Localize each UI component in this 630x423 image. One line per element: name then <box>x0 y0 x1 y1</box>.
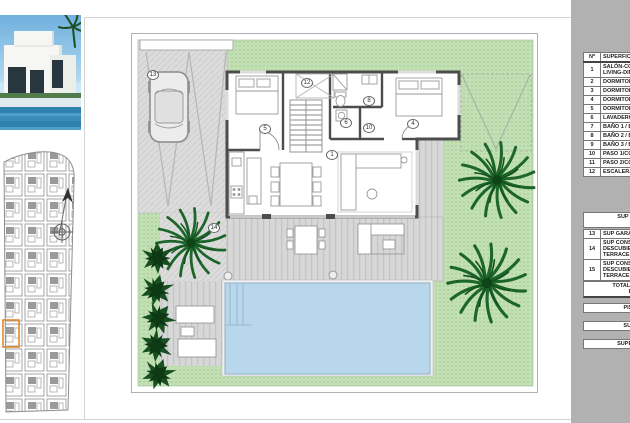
legend-row-name: SUP GARAG <box>601 230 630 239</box>
floor-plan: 1351286104114 <box>131 33 538 393</box>
legend-row-name: BAÑO 1 / BA <box>601 123 630 132</box>
urbanization-outline <box>4 152 74 412</box>
legend-row-number: 3 <box>584 87 601 96</box>
total-built-area: TOTAL SUP CONSTRU BUILT PRI <box>583 281 630 298</box>
legend-row: 14SUP CONSTDESCUBIERTTERRACE A <box>584 239 630 260</box>
legend-row-number: 5 <box>584 105 601 114</box>
legend-row: 11PASO 2/CO <box>584 159 630 168</box>
legend-row: 10PASO 1/CO <box>584 150 630 159</box>
room-number-4: 4 <box>407 119 419 129</box>
room-number-labels: 1351286104114 <box>131 33 538 393</box>
legend-row-name: DORMITORI <box>601 105 630 114</box>
legend-row: 3DORMITORI <box>584 87 630 96</box>
legend-row-number: 4 <box>584 96 601 105</box>
legend-row: 12ESCALERA 1 <box>584 168 630 177</box>
villa-window <box>52 60 63 88</box>
villa-photo <box>0 15 81 130</box>
legend-row: 13SUP GARAG <box>584 230 630 239</box>
legend-row-number: 7 <box>584 123 601 132</box>
legend-row-number: 15 <box>584 260 601 281</box>
room-number-5: 5 <box>259 124 271 134</box>
drawing-sheet: 1351286104114 nº SUPERFICIE 1SALÓN-COMLI… <box>0 0 630 423</box>
room-number-14: 14 <box>208 223 220 233</box>
room-number-10: 10 <box>363 123 375 133</box>
divider-top <box>84 17 571 18</box>
legend-row-name: SUP CONSTDESCUBIERTTERRACE A <box>601 239 630 260</box>
legend-row-name: BAÑO 2 / BA <box>601 132 630 141</box>
col-number: nº <box>584 53 601 63</box>
legend-row-number: 2 <box>584 78 601 87</box>
room-number-12: 12 <box>301 78 313 88</box>
villa-window <box>8 67 26 93</box>
legend-row-name: ESCALERA 1 <box>601 168 630 177</box>
villa-railing <box>14 45 54 47</box>
legend-row-name: BAÑO 3 / BA <box>601 141 630 150</box>
room-number-13: 13 <box>147 70 159 80</box>
pool-area-row: PISCINA / SWI <box>583 303 630 313</box>
legend-row-name: PASO 2/CO <box>601 159 630 168</box>
legend-row-number: 9 <box>584 141 601 150</box>
legend-row: 7BAÑO 1 / BA <box>584 123 630 132</box>
site-location-plan <box>2 148 82 418</box>
legend-row-number: 6 <box>584 114 601 123</box>
legend-row-name: SUP CONSTDESCUBIERTTERRACE A <box>601 260 630 281</box>
legend-row-name: DORMITORI <box>601 96 630 105</box>
col-surface: SUPERFICIE <box>601 53 630 63</box>
legend-row-number: 13 <box>584 230 601 239</box>
legend-row-number: 8 <box>584 132 601 141</box>
legend-row: 8BAÑO 2 / BA <box>584 132 630 141</box>
legend-row-number: 1 <box>584 62 601 78</box>
areas-table: nº SUPERFICIE 1SALÓN-COMLIVING-DIN2DORMI… <box>583 52 630 177</box>
legend-row-number: 11 <box>584 159 601 168</box>
exterior-areas-table: 13SUP GARAG14SUP CONSTDESCUBIERTTERRACE … <box>583 229 630 281</box>
areas-table-header: nº SUPERFICIE <box>584 53 630 63</box>
room-number-1: 1 <box>326 150 338 160</box>
room-number-8: 8 <box>363 96 375 106</box>
legend-row: 15SUP CONSTDESCUBIERTTERRACE A <box>584 260 630 281</box>
legend-row-number: 10 <box>584 150 601 159</box>
legend-row: 4DORMITORI <box>584 96 630 105</box>
legend-panel: nº SUPERFICIE 1SALÓN-COMLIVING-DIN2DORMI… <box>571 0 630 423</box>
legend-row: 2DORMITORI <box>584 78 630 87</box>
legend-row: 5DORMITORI <box>584 105 630 114</box>
legend-row-number: 14 <box>584 239 601 260</box>
legend-row-number: 12 <box>584 168 601 177</box>
villa-pool-deck <box>0 98 81 107</box>
villa-window <box>30 70 44 93</box>
legend-row: 6LAVADERO, <box>584 114 630 123</box>
palm-tree-icon <box>58 15 81 49</box>
room-number-6: 6 <box>340 118 352 128</box>
built-area-section-header: SUP CONSTRUIDA INTERIO <box>583 212 630 228</box>
legend-row-name: PASO 1/CO <box>601 150 630 159</box>
legend-row-name: LAVADERO, <box>601 114 630 123</box>
legend-row-name: SALÓN-COMLIVING-DIN <box>601 62 630 78</box>
divider-left <box>84 17 85 420</box>
legend-row: 1SALÓN-COMLIVING-DIN <box>584 62 630 78</box>
plot-area-row: SUPERFICIE PARC <box>583 339 630 349</box>
divider-bottom <box>0 419 571 420</box>
legend-row-name: DORMITORI <box>601 87 630 96</box>
villa-pool <box>0 107 81 130</box>
legend-row-name: DORMITORI <box>601 78 630 87</box>
legend-row: 9BAÑO 3 / BA <box>584 141 630 150</box>
garden-area-row: SUP. JARDÍN / <box>583 321 630 331</box>
